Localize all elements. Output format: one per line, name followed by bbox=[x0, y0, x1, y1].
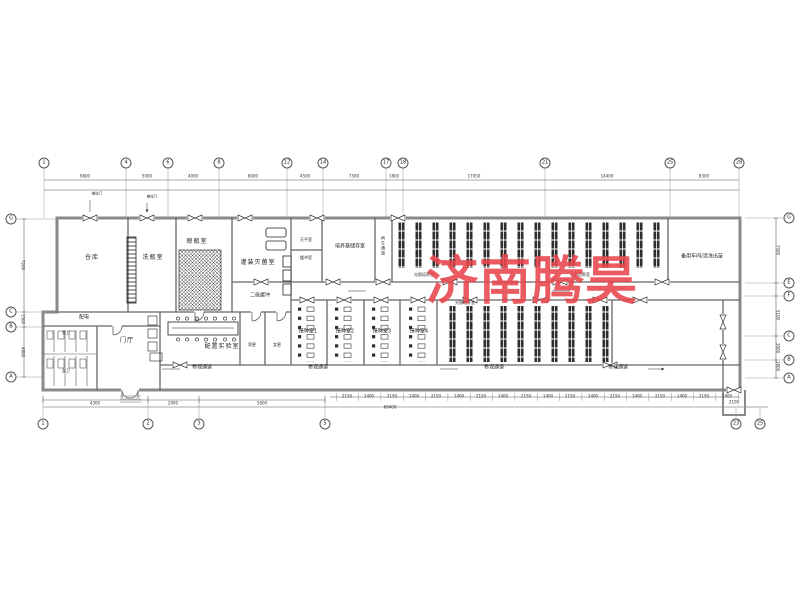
floor-plan-sheet: 仓库 洗瓶室 晾瓶室 灌装灭菌室 天平室 缓冲室 培养基储存室 再生通道 光照培… bbox=[0, 0, 800, 600]
watermark-text: 济南腾昊 bbox=[426, 255, 638, 310]
floor-plan-drawing bbox=[0, 0, 800, 600]
